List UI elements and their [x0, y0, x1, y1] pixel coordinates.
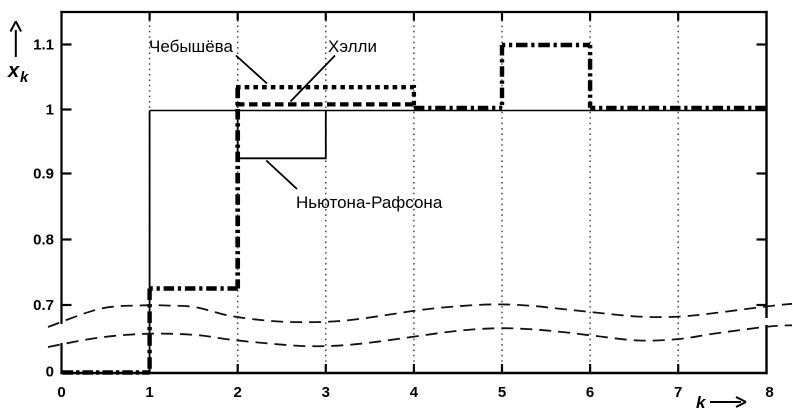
svg-text:7: 7: [674, 384, 682, 401]
svg-text:Хэлли: Хэлли: [328, 37, 377, 56]
svg-text:0.7: 0.7: [33, 297, 54, 314]
svg-text:0: 0: [57, 384, 65, 401]
svg-text:0: 0: [46, 364, 54, 381]
svg-text:8: 8: [765, 384, 773, 401]
svg-text:1: 1: [145, 384, 153, 401]
svg-text:1: 1: [46, 102, 54, 119]
svg-text:k: k: [20, 69, 29, 86]
svg-text:2: 2: [234, 384, 242, 401]
svg-text:Ньютона-Рафсона: Ньютона-Рафсона: [296, 193, 443, 212]
svg-text:0.8: 0.8: [33, 232, 54, 249]
svg-text:Чебышёва: Чебышёва: [149, 37, 233, 56]
svg-text:5: 5: [498, 384, 506, 401]
svg-text:1.1: 1.1: [33, 37, 54, 54]
svg-text:3: 3: [322, 384, 330, 401]
svg-text:0.9: 0.9: [33, 166, 54, 183]
svg-text:x: x: [7, 60, 20, 82]
svg-text:4: 4: [410, 384, 419, 401]
svg-text:k: k: [696, 393, 707, 412]
svg-text:6: 6: [586, 384, 594, 401]
